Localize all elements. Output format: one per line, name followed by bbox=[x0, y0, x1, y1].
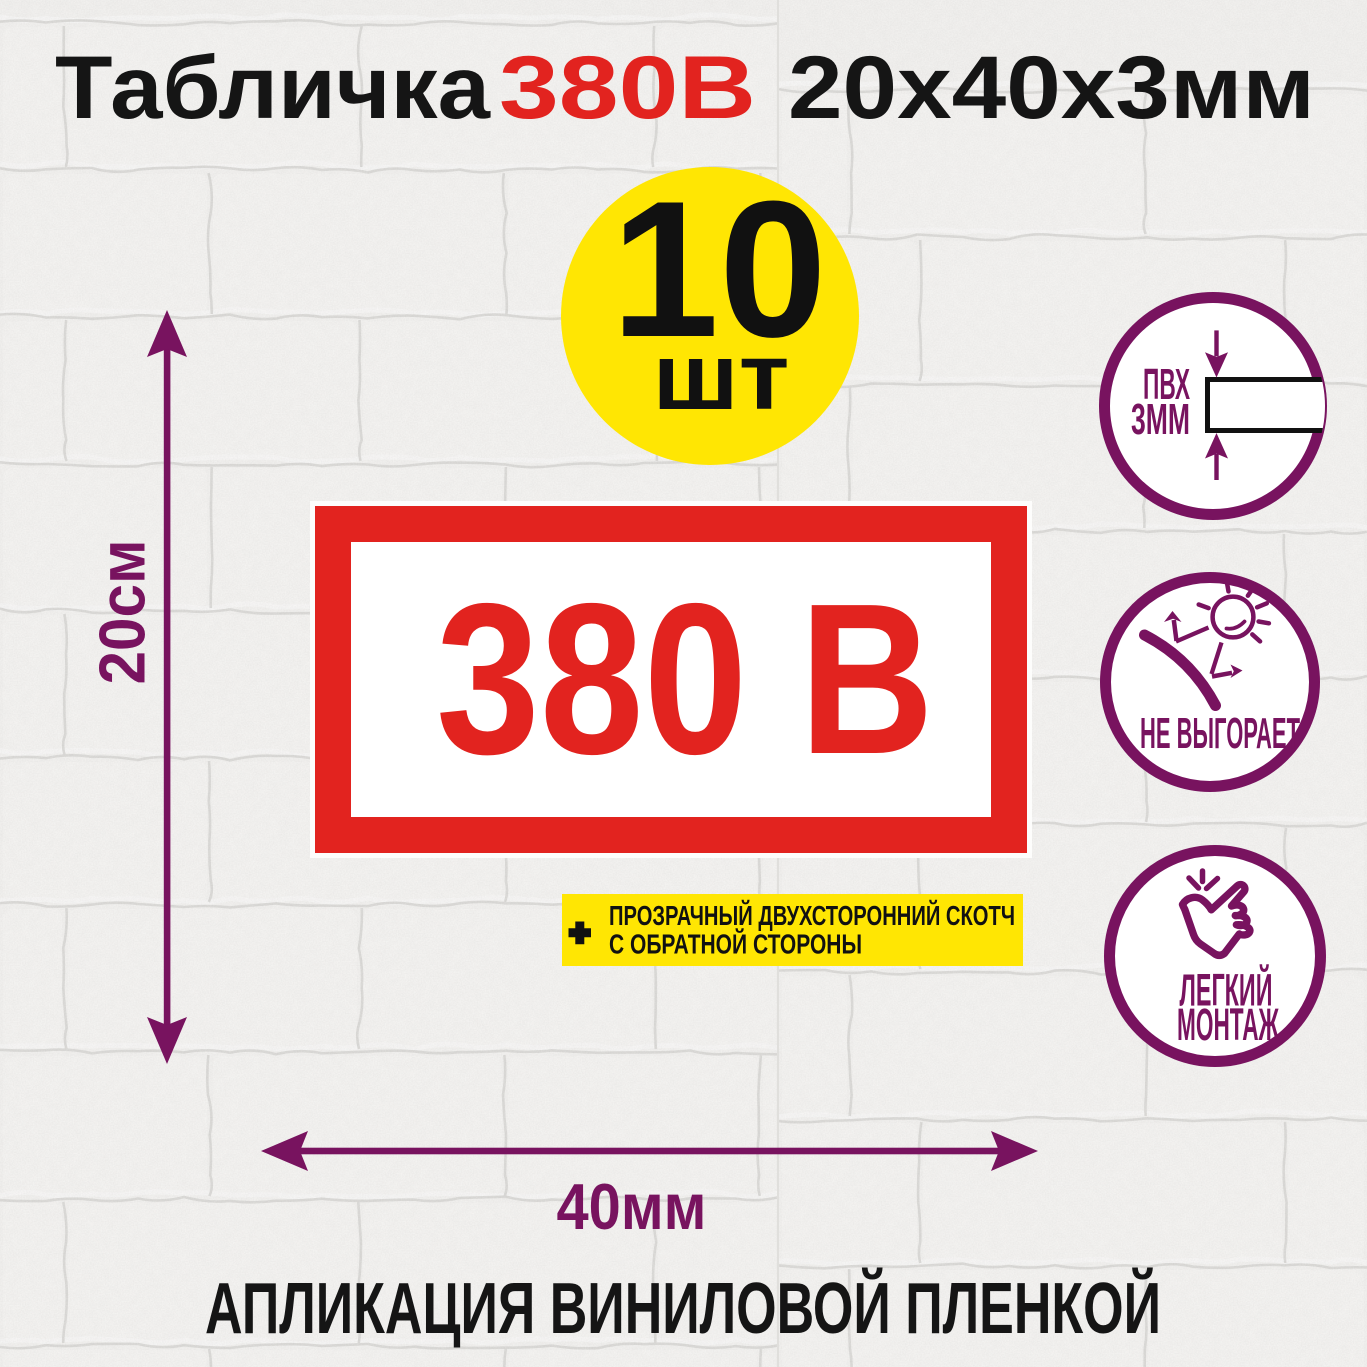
svg-text:шт: шт bbox=[653, 324, 790, 430]
svg-text:ПРОЗРАЧНЫЙ ДВУХСТОРОННИЙ СКОТЧ: ПРОЗРАЧНЫЙ ДВУХСТОРОННИЙ СКОТЧ bbox=[609, 900, 1015, 931]
svg-text:3ММ: 3ММ bbox=[1131, 396, 1190, 444]
svg-text:40мм: 40мм bbox=[557, 1170, 707, 1243]
svg-text:380 В: 380 В bbox=[436, 558, 934, 799]
svg-text:Табличка: Табличка bbox=[55, 37, 492, 137]
svg-text:380В: 380В bbox=[499, 37, 756, 137]
svg-text:С ОБРАТНОЙ СТОРОНЫ: С ОБРАТНОЙ СТОРОНЫ bbox=[609, 929, 862, 960]
svg-text:НЕ ВЫГОРАЕТ: НЕ ВЫГОРАЕТ bbox=[1140, 710, 1300, 758]
svg-text:МОНТАЖ: МОНТАЖ bbox=[1177, 999, 1279, 1050]
svg-text:20х40х3мм: 20х40х3мм bbox=[788, 37, 1315, 137]
svg-text:АПЛИКАЦИЯ ВИНИЛОВОЙ ПЛЕНКОЙ: АПЛИКАЦИЯ ВИНИЛОВОЙ ПЛЕНКОЙ bbox=[205, 1267, 1161, 1349]
svg-text:20см: 20см bbox=[86, 540, 159, 685]
